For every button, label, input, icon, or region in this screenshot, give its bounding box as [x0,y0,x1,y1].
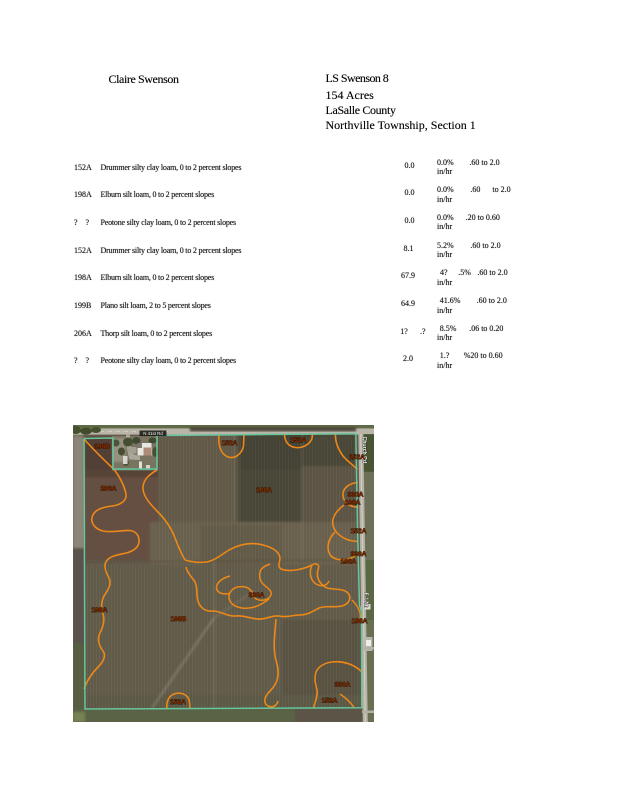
svg-text:198A: 198A [345,500,361,507]
svg-text:198A: 198A [352,618,368,625]
svg-text:198B: 198B [94,444,110,451]
svg-text:330A: 330A [351,551,367,558]
svg-text:206A: 206A [101,486,117,493]
svg-text:330A: 330A [249,592,265,599]
svg-text:198A: 198A [341,559,357,566]
svg-text:152A: 152A [322,698,338,705]
svg-text:198A: 198A [92,607,108,614]
svg-text:N 41st Rd: N 41st Rd [143,431,163,436]
svg-text:152A: 152A [351,528,367,535]
svg-text:199B: 199B [171,616,187,623]
svg-text:330A: 330A [335,682,351,689]
svg-text:152A: 152A [291,437,307,444]
svg-text:152A: 152A [349,454,365,461]
svg-text:152A: 152A [170,699,186,706]
svg-text:E 12th: E 12th [363,593,369,609]
svg-text:198A: 198A [256,487,272,494]
svg-text:330A: 330A [348,492,364,499]
svg-text:152A: 152A [222,440,238,447]
